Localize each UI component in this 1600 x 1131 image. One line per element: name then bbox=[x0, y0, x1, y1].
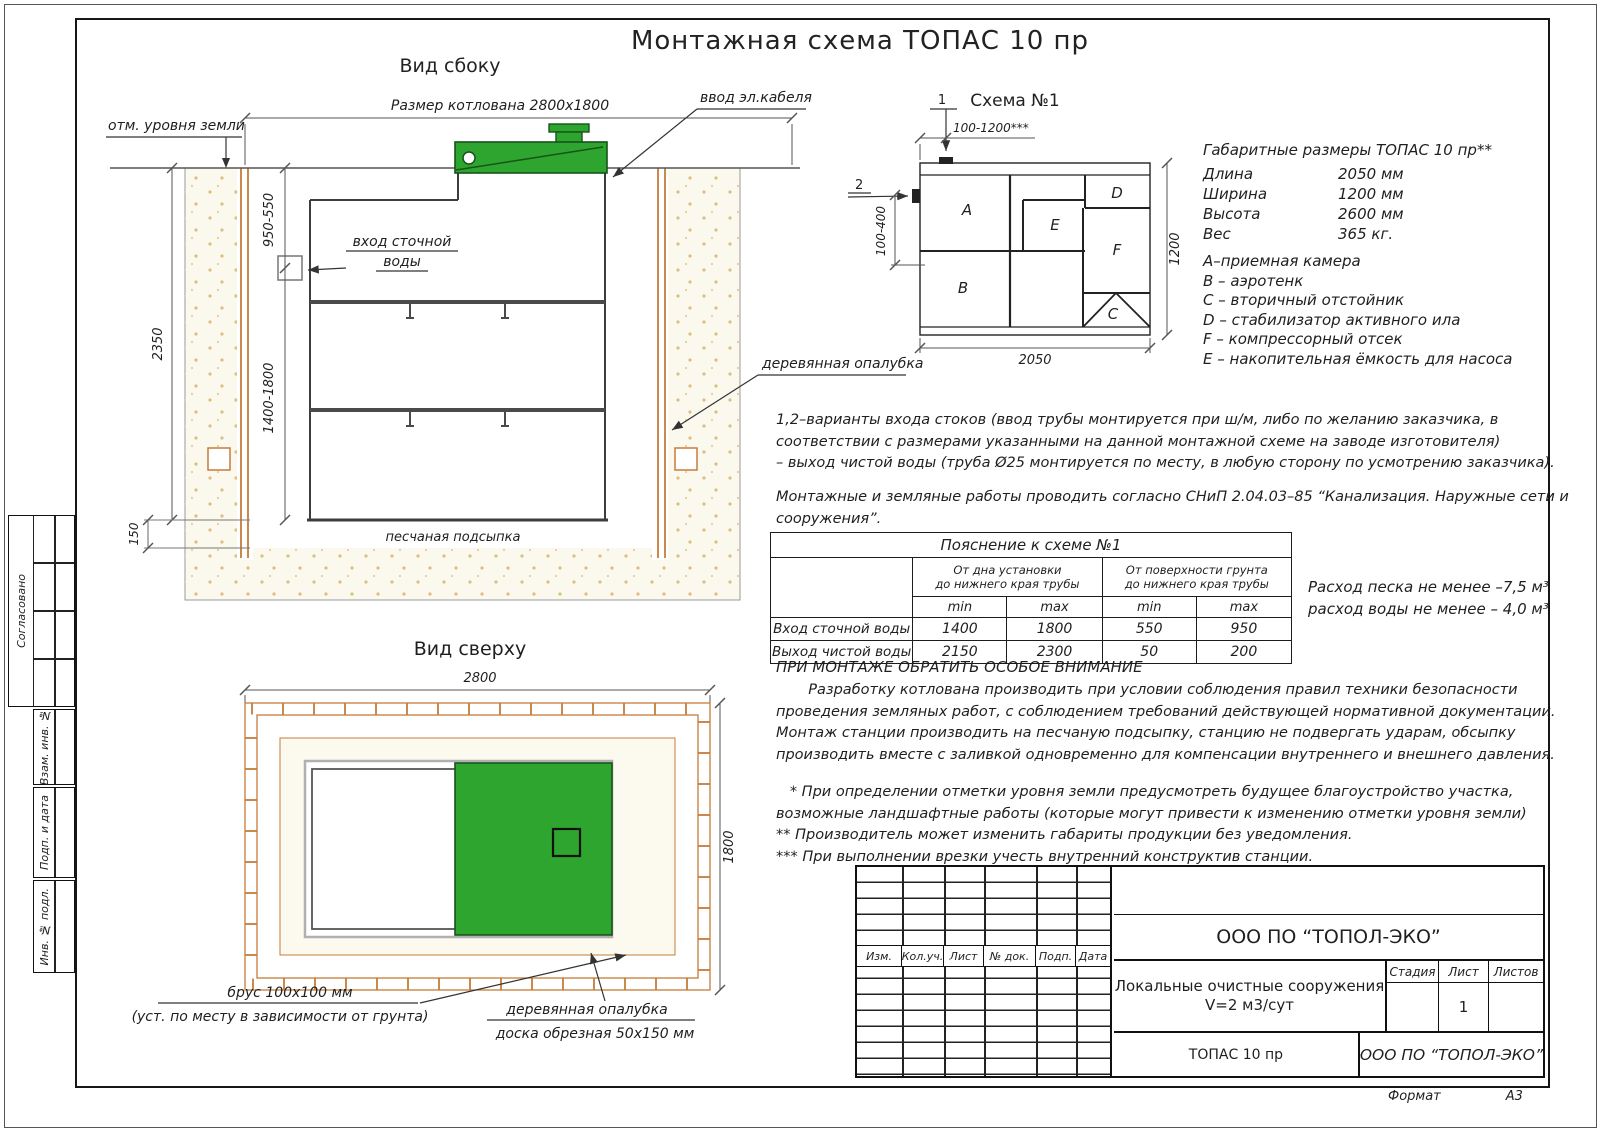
col-izm: Изм. bbox=[857, 946, 902, 966]
title-block: Изм. Кол.уч. Лист № док. Подп. Дата ООО … bbox=[855, 865, 1545, 1078]
stamp-divider bbox=[54, 710, 56, 784]
legend-item: А–приемная камера bbox=[1203, 252, 1593, 272]
chamber-c: C bbox=[1108, 305, 1119, 323]
row-name: Вход сточной воды bbox=[771, 618, 913, 641]
ground-arrowhead bbox=[222, 158, 230, 168]
chamber-legend: А–приемная камера В – аэротенк С – втори… bbox=[1203, 252, 1593, 369]
drawing-sheet: Монтажная схема ТОПАС 10 пр Вид сбоку bbox=[0, 0, 1600, 1131]
company-name-italic: ООО ПО “ТОПОЛ-ЭКО” bbox=[1360, 1033, 1543, 1076]
table-minmax: max bbox=[1196, 597, 1291, 618]
col-list: Лист bbox=[944, 946, 984, 966]
stamp-line bbox=[33, 658, 74, 660]
table-minmax: max bbox=[1007, 597, 1102, 618]
chamber-f: F bbox=[1113, 241, 1122, 259]
inlet-pipe-opening bbox=[278, 256, 302, 280]
legend-item: D – стабилизатор активного ила bbox=[1203, 311, 1593, 331]
chamber-b: B bbox=[958, 279, 968, 297]
pit-size-label: Размер котлована 2800х1800 bbox=[391, 98, 609, 114]
company-name: ООО ПО “ТОПОЛ-ЭКО” bbox=[1114, 915, 1543, 961]
inlet-label-line2: воды bbox=[383, 254, 421, 270]
format-note: ФорматА3 bbox=[1388, 1089, 1588, 1104]
chamber-a: A bbox=[961, 201, 972, 219]
tank-top-view bbox=[305, 761, 612, 937]
note-line: сооружения”. bbox=[776, 509, 1576, 531]
spec-value: 2050 мм bbox=[1338, 164, 1404, 184]
ground-level-label: отм. уровня земли bbox=[108, 118, 245, 134]
spec-label: Вес bbox=[1203, 224, 1338, 244]
dim-2350: 2350 bbox=[151, 327, 166, 360]
format-label: Формат bbox=[1388, 1089, 1441, 1104]
stage-block: Стадия Лист1 Листов bbox=[1387, 961, 1543, 1031]
spec-row: Ширина1200 мм bbox=[1203, 184, 1593, 204]
legend-item: В – аэротенк bbox=[1203, 272, 1593, 292]
stamp-line bbox=[33, 610, 74, 612]
sheets-value bbox=[1489, 983, 1543, 1031]
title-block-right: ООО ПО “ТОПОЛ-ЭКО” Локальные очистные со… bbox=[1114, 867, 1543, 1076]
dim-950-550: 950-550 bbox=[262, 193, 277, 247]
row-value: 200 bbox=[1196, 641, 1291, 664]
spec-title: Габаритные размеры ТОПАС 10 пр** bbox=[1203, 140, 1593, 160]
col-podp: Подп. bbox=[1036, 946, 1076, 966]
project-line1: Локальные очистные сооружения bbox=[1115, 977, 1385, 997]
sheet-label: Лист bbox=[1439, 961, 1488, 983]
attention-note: Разработку котлована производить при усл… bbox=[776, 680, 1576, 766]
dim-1400-1800: 1400-1800 bbox=[262, 363, 277, 434]
top-formwork-label-line2: доска обрезная 50х150 мм bbox=[495, 1026, 695, 1042]
table-minmax: min bbox=[1102, 597, 1196, 618]
legend-item: Е – накопительная ёмкость для насоса bbox=[1203, 350, 1593, 370]
spec-label: Ширина bbox=[1203, 184, 1338, 204]
formwork-brace-left bbox=[208, 448, 230, 470]
table-empty-cell bbox=[771, 558, 913, 618]
stage-label: Стадия bbox=[1387, 961, 1438, 983]
spec-row: Длина2050 мм bbox=[1203, 164, 1593, 184]
stamp-line bbox=[33, 562, 74, 564]
stamp-divider bbox=[54, 881, 56, 972]
stamp-label-cell: Инв. № подл. bbox=[34, 881, 54, 972]
spec-row: Высота2600 мм bbox=[1203, 204, 1593, 224]
stamp-divider bbox=[54, 788, 56, 877]
top-view-title: Вид сверху bbox=[414, 638, 526, 660]
inlet-label-line1: вход сточной bbox=[353, 234, 452, 250]
col-data: Дата bbox=[1076, 946, 1110, 966]
schema-bottom-dimension bbox=[915, 338, 1155, 353]
note-line: Разработку котлована производить при усл… bbox=[776, 680, 1576, 702]
col-ndok: № док. bbox=[984, 946, 1036, 966]
lid-port-icon bbox=[463, 152, 475, 164]
legend-item: С – вторичный отстойник bbox=[1203, 291, 1593, 311]
spec-value: 1200 мм bbox=[1338, 184, 1404, 204]
inv-podl-label: Инв. № подл. bbox=[38, 888, 51, 965]
variants-note: 1,2–варианты входа стоков (ввод трубы мо… bbox=[776, 410, 1576, 475]
schema-marker1: 1 bbox=[938, 93, 946, 108]
table-group2: От поверхности грунта до нижнего края тр… bbox=[1102, 558, 1291, 597]
note-line: Монтаж станции производить на песчаную п… bbox=[776, 723, 1576, 745]
attention-title: ПРИ МОНТАЖЕ ОБРАТИТЬ ОСОБОЕ ВНИМАНИЕ bbox=[776, 658, 1143, 676]
sheet-value: 1 bbox=[1439, 983, 1488, 1031]
note-line: расход воды не менее – 4,0 м³ bbox=[1308, 598, 1549, 620]
project-line2: V=2 м3/сут bbox=[1205, 996, 1294, 1016]
approved-label: Согласовано bbox=[15, 574, 28, 648]
schema-dim-top: 100-1200*** bbox=[953, 121, 1029, 135]
note-line: – выход чистой воды (труба Ø25 монтирует… bbox=[776, 453, 1576, 475]
project-name: Локальные очистные сооружения V=2 м3/сут bbox=[1114, 961, 1387, 1031]
row-value: 1400 bbox=[913, 618, 1007, 641]
consumption-note: Расход песка не менее –7,5 м³ расход вод… bbox=[1308, 576, 1549, 620]
explanation-table: Пояснение к схеме №1 От дна установки до… bbox=[770, 532, 1292, 664]
note-line: производить вместе с заливкой одновремен… bbox=[776, 745, 1576, 767]
dim-2800: 2800 bbox=[463, 671, 496, 686]
dimensions-spec-block: Габаритные размеры ТОПАС 10 пр** Длина20… bbox=[1203, 140, 1593, 244]
spec-row: Вес365 кг. bbox=[1203, 224, 1593, 244]
col-koluch: Кол.уч. bbox=[902, 946, 944, 966]
top-width-dimension bbox=[240, 685, 715, 703]
format-value: А3 bbox=[1506, 1089, 1523, 1104]
green-lid bbox=[455, 124, 607, 173]
note-line: * При определении отметки уровня земли п… bbox=[776, 782, 1576, 804]
podp-data-label: Подп. и дата bbox=[38, 795, 51, 870]
dim-1800: 1800 bbox=[722, 830, 737, 863]
spec-label: Высота bbox=[1203, 204, 1338, 224]
vzam-inv-label: Взам. инв. № bbox=[38, 709, 51, 785]
spec-value: 365 кг. bbox=[1338, 224, 1393, 244]
stamp-podp-data: Подп. и дата bbox=[33, 787, 75, 878]
row-value: 950 bbox=[1196, 618, 1291, 641]
note-line: ** Производитель может изменить габариты… bbox=[776, 825, 1576, 847]
stamp-label-cell: Взам. инв. № bbox=[34, 710, 54, 784]
note-line: соответствии с размерами указанными на д… bbox=[776, 432, 1576, 454]
schema-dim-left: 100-400 bbox=[874, 206, 888, 257]
stamp-label-cell: Подп. и дата bbox=[34, 788, 54, 877]
depth-dimension bbox=[167, 163, 177, 525]
green-lid-top bbox=[455, 763, 612, 935]
schema-dim-right: 1200 bbox=[1168, 232, 1183, 265]
marker2-arrow bbox=[848, 196, 908, 197]
doc-number-cell bbox=[1114, 867, 1543, 915]
inlet-fitting-top bbox=[939, 157, 953, 164]
sheets-label: Листов bbox=[1489, 961, 1543, 983]
legend-item: F – компрессорный отсек bbox=[1203, 330, 1593, 350]
cable-entry-label: ввод эл.кабеля bbox=[700, 90, 812, 106]
note-line: Монтажные и земляные работы проводить со… bbox=[776, 487, 1576, 509]
row-value: 1800 bbox=[1007, 618, 1102, 641]
table-row: Вход сточной воды 1400 1800 550 950 bbox=[771, 618, 1292, 641]
note-line: 1,2–варианты входа стоков (ввод трубы мо… bbox=[776, 410, 1576, 432]
row-value: 550 bbox=[1102, 618, 1196, 641]
stage-value bbox=[1387, 983, 1438, 1031]
schema-dim-bottom: 2050 bbox=[1018, 353, 1051, 368]
table-minmax: min bbox=[913, 597, 1007, 618]
vent-cap bbox=[549, 124, 589, 132]
note-line: Расход песка не менее –7,5 м³ bbox=[1308, 576, 1549, 598]
beam-label-line1: брус 100х100 мм bbox=[227, 985, 353, 1001]
top-formwork-label-line1: деревянная опалубка bbox=[505, 1002, 667, 1018]
note-line: возможные ландшафтные работы (которые мо… bbox=[776, 804, 1576, 826]
sand-bed-label: песчаная подсыпка bbox=[386, 530, 521, 545]
schema-top-dimension bbox=[915, 133, 1035, 160]
chamber-d: D bbox=[1111, 184, 1123, 202]
drawing-title: Монтажная схема ТОПАС 10 пр bbox=[610, 26, 1110, 56]
footnotes: * При определении отметки уровня земли п… bbox=[776, 782, 1576, 868]
cable-leader bbox=[613, 109, 697, 177]
beam-label-line2: (уст. по месту в зависимости от грунта) bbox=[132, 1009, 429, 1025]
approval-stamp: Согласовано bbox=[8, 515, 75, 707]
schema1-drawing: Схема №1 A B E D F C 1 bbox=[845, 88, 1190, 378]
spec-value: 2600 мм bbox=[1338, 204, 1404, 224]
dim-150: 150 bbox=[127, 522, 141, 545]
approved-label-cell: Согласовано bbox=[9, 516, 34, 706]
top-view-drawing: Вид сверху 2800 bbox=[150, 635, 790, 1075]
schema-title: Схема №1 bbox=[970, 91, 1060, 111]
snip-note: Монтажные и земляные работы проводить со… bbox=[776, 487, 1576, 530]
revision-grid: Изм. Кол.уч. Лист № док. Подп. Дата bbox=[857, 867, 1112, 1076]
formwork-brace-right bbox=[675, 448, 697, 470]
note-line: проведения земляных работ, с соблюдением… bbox=[776, 702, 1576, 724]
chamber-e: E bbox=[1050, 216, 1060, 234]
table-title: Пояснение к схеме №1 bbox=[771, 533, 1292, 558]
product-name: ТОПАС 10 пр bbox=[1114, 1033, 1360, 1076]
revision-header: Изм. Кол.уч. Лист № док. Подп. Дата bbox=[857, 945, 1110, 967]
inlet-fitting-side bbox=[912, 189, 920, 203]
side-view-title: Вид сбоку bbox=[350, 55, 550, 77]
spec-label: Длина bbox=[1203, 164, 1338, 184]
table-group1: От дна установки до нижнего края трубы bbox=[913, 558, 1102, 597]
schema-marker2: 2 bbox=[855, 178, 863, 193]
stamp-vzam-inv: Взам. инв. № bbox=[33, 709, 75, 785]
stamp-inv-podl: Инв. № подл. bbox=[33, 880, 75, 973]
